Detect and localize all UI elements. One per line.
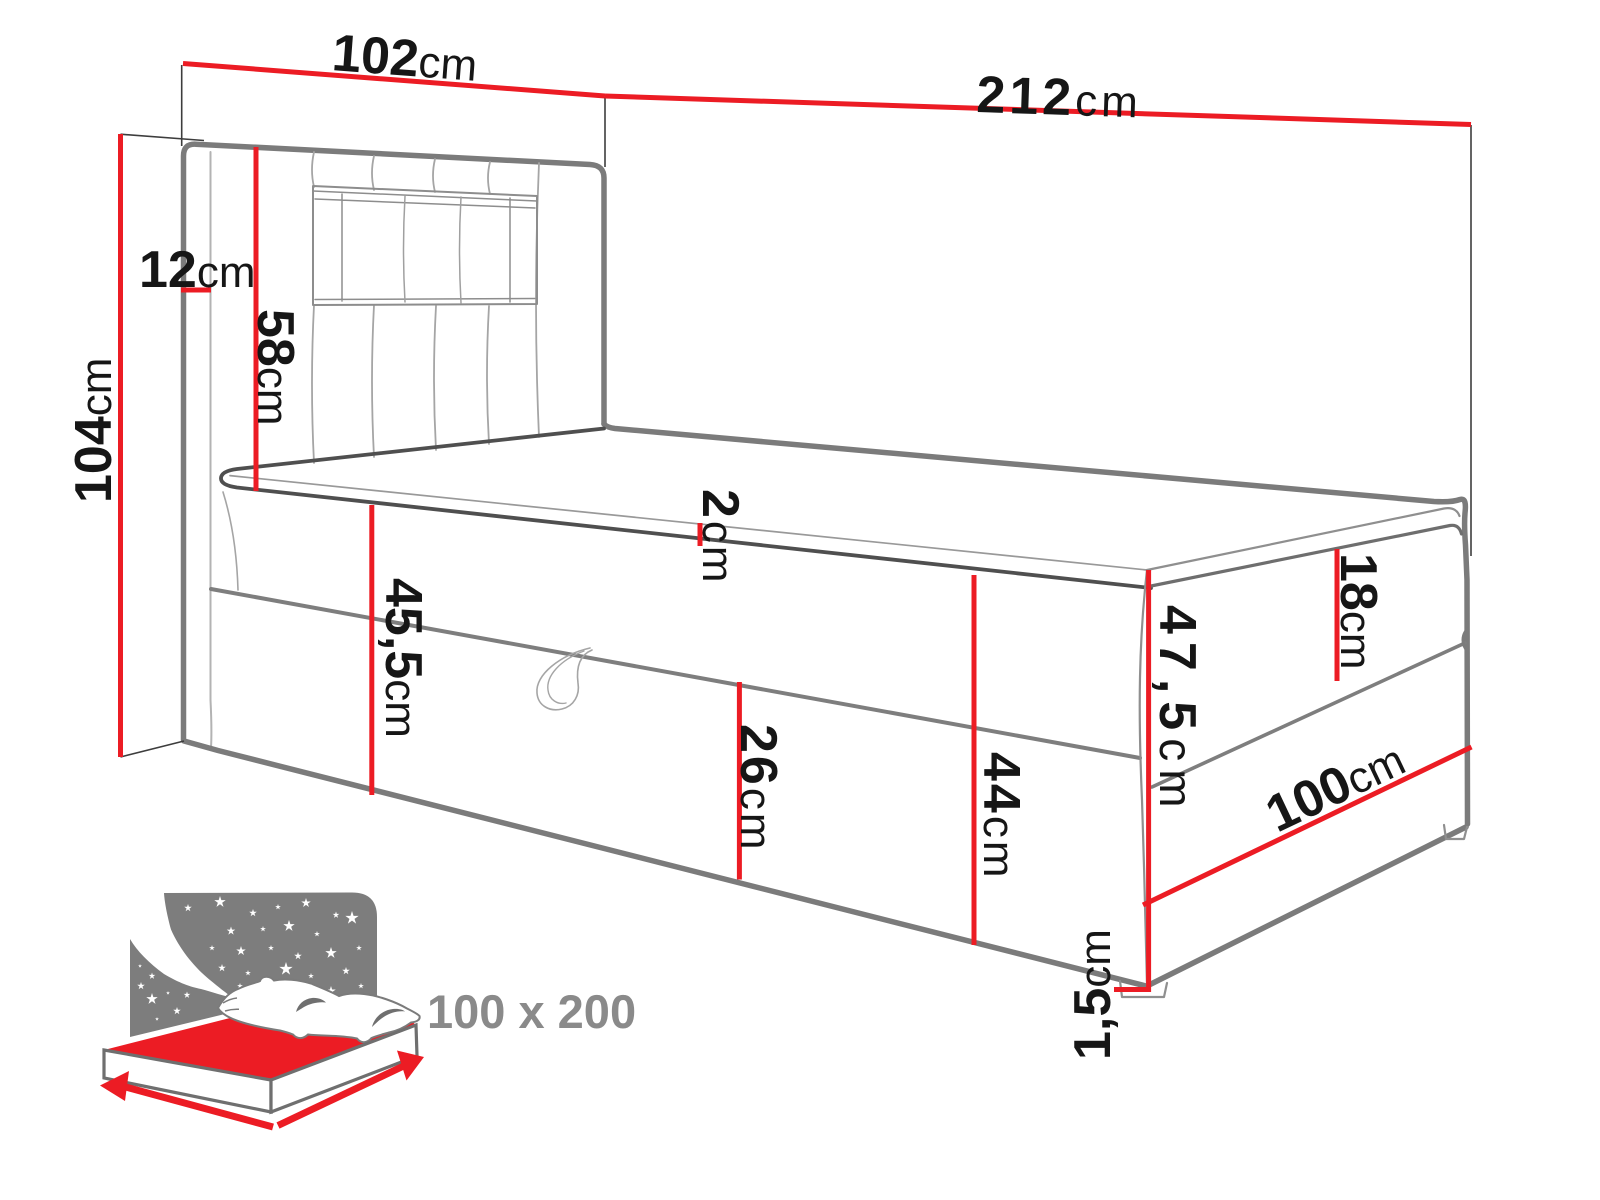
svg-text:2cm: 2cm: [691, 489, 749, 586]
svg-text:58cm: 58cm: [246, 309, 304, 426]
svg-text:104cm: 104cm: [65, 358, 123, 503]
svg-text:47,5cm: 47,5cm: [1148, 605, 1206, 816]
svg-text:18cm: 18cm: [1329, 553, 1387, 670]
svg-text:45,5cm: 45,5cm: [374, 578, 432, 738]
svg-text:12cm: 12cm: [139, 241, 256, 299]
svg-text:26cm: 26cm: [729, 724, 787, 853]
svg-text:44cm: 44cm: [972, 752, 1030, 881]
svg-text:1,5cm: 1,5cm: [1064, 929, 1122, 1060]
svg-text:100 x 200: 100 x 200: [427, 985, 636, 1038]
